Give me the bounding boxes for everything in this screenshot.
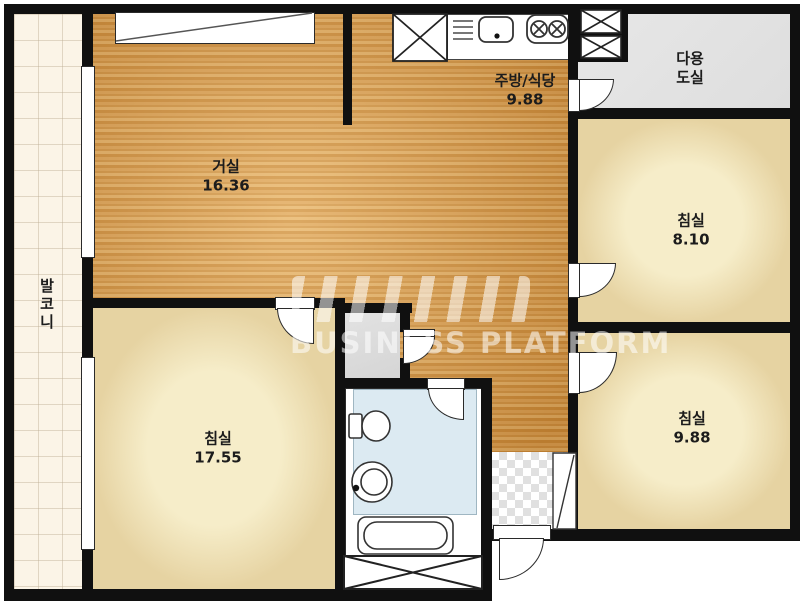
living-balcony-window [81, 66, 95, 258]
living-bedroom-wall-a [88, 298, 277, 308]
utility-room-name-line2: 도실 [676, 68, 704, 87]
balcony-label: 발코니 [37, 278, 58, 332]
bedroom-balcony-window [81, 357, 95, 550]
outer-wall-right [790, 4, 800, 541]
kitchen-name: 주방/식당 [495, 71, 556, 90]
hall-east-wall-d [568, 391, 578, 541]
bedroom-right-bottom-label: 침실 9.88 [673, 409, 710, 447]
bedroom-right-top-label: 침실 8.10 [672, 211, 709, 249]
kitchen-counter [447, 14, 570, 60]
hall-east-wall-c [568, 293, 578, 352]
bedroom-left-east-wall [335, 298, 345, 601]
living-room-label: 거실 16.36 [202, 157, 249, 195]
bedroom-right-top-name: 침실 [672, 211, 709, 230]
dressing-closet-floor [345, 313, 400, 378]
kitchen-area: 9.88 [495, 90, 556, 109]
utility-bottom-wall [578, 108, 790, 119]
bedroom-right-bottom-name: 침실 [673, 409, 710, 428]
bedroom-left-name: 침실 [194, 429, 241, 448]
living-wardrobe [115, 12, 315, 44]
floorplan-canvas: 발코니 거실 16.36 주방/식당 9.88 다용 도실 침실 8.10 침실… [0, 0, 808, 613]
bedroom-left-area: 17.55 [194, 448, 241, 467]
bedroom-right-bottom-area: 9.88 [673, 428, 710, 447]
outer-wall-left [4, 4, 14, 601]
bathroom-top-wall-a [335, 378, 428, 388]
duct-shaft-block [578, 6, 628, 62]
bedrooms-divider-wall [578, 322, 790, 333]
bedroom-left-label: 침실 17.55 [194, 429, 241, 467]
bathroom-east-wall [481, 378, 492, 601]
hall-east-wall-b [568, 108, 578, 263]
living-kitchen-stub-wall [343, 4, 352, 125]
living-room-name: 거실 [202, 157, 249, 176]
dressing-east-wall-a [400, 303, 410, 332]
utility-room-label: 다용 도실 [676, 49, 704, 87]
bedroom-right-top-area: 8.10 [672, 230, 709, 249]
hall-east-wall-a [568, 4, 578, 79]
kitchen-label: 주방/식당 9.88 [495, 71, 556, 109]
entrance-foyer-floor [491, 452, 568, 529]
outer-wall-bottom-left [4, 589, 492, 601]
living-room-area: 16.36 [202, 176, 249, 195]
utility-room-name-line1: 다용 [676, 49, 704, 68]
